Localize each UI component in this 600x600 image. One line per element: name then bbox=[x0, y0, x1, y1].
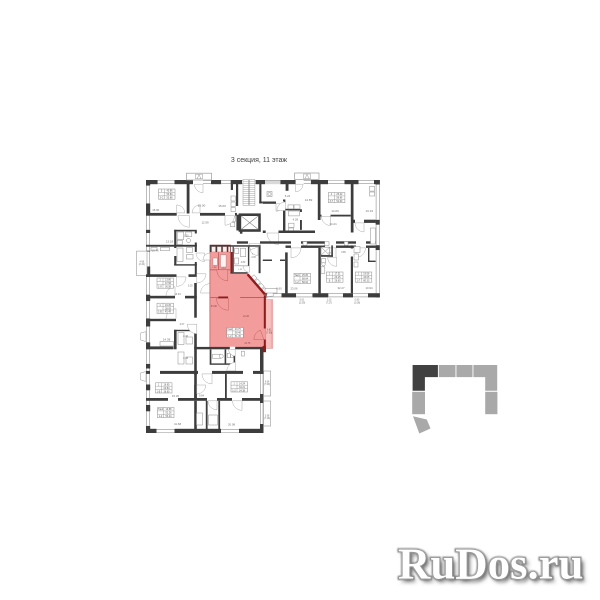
svg-text:36.58: 36.58 bbox=[165, 286, 172, 289]
svg-text:1-Л: 1-Л bbox=[158, 286, 162, 289]
svg-text:4.68: 4.68 bbox=[140, 261, 145, 263]
svg-text:RuDos.ru: RuDos.ru bbox=[398, 539, 583, 589]
svg-text:3.58: 3.58 bbox=[265, 415, 270, 417]
svg-text:12.99: 12.99 bbox=[202, 221, 209, 225]
svg-text:20.08: 20.08 bbox=[228, 423, 235, 427]
svg-text:53.44: 53.44 bbox=[166, 415, 173, 418]
svg-text:1.53: 1.53 bbox=[184, 235, 189, 238]
svg-text:(7.18): (7.18) bbox=[264, 418, 270, 420]
svg-text:4.05: 4.05 bbox=[251, 257, 256, 259]
svg-text:5.24: 5.24 bbox=[285, 194, 291, 198]
svg-text:1.39: 1.39 bbox=[238, 269, 243, 271]
svg-text:4.28: 4.28 bbox=[293, 217, 299, 221]
svg-text:51.45: 51.45 bbox=[235, 335, 242, 338]
svg-text:(2.59): (2.59) bbox=[299, 302, 305, 305]
svg-text:45.49: 45.49 bbox=[165, 311, 172, 314]
svg-text:3-С: 3-С bbox=[160, 197, 164, 200]
svg-text:41.68: 41.68 bbox=[174, 422, 181, 426]
svg-text:9.60: 9.60 bbox=[276, 287, 282, 291]
svg-text:14.38: 14.38 bbox=[163, 337, 171, 341]
svg-text:13.94: 13.94 bbox=[174, 293, 181, 296]
svg-text:(7.27): (7.27) bbox=[326, 302, 332, 305]
svg-text:21.26: 21.26 bbox=[243, 316, 249, 318]
svg-text:13.76: 13.76 bbox=[152, 249, 159, 253]
svg-text:15.36: 15.36 bbox=[172, 394, 179, 398]
svg-text:Так2: Так2 bbox=[227, 328, 233, 331]
svg-text:4.46: 4.46 bbox=[183, 334, 189, 338]
svg-text:Так2: Так2 bbox=[158, 408, 164, 411]
svg-text:15.00: 15.00 bbox=[198, 204, 206, 208]
svg-text:13.18: 13.18 bbox=[166, 240, 173, 244]
svg-text:(1.08): (1.08) bbox=[354, 302, 360, 305]
svg-text:32.27: 32.27 bbox=[338, 286, 345, 290]
svg-text:6.58: 6.58 bbox=[265, 381, 270, 383]
svg-text:15.60: 15.60 bbox=[218, 204, 226, 208]
svg-text:4.89: 4.89 bbox=[241, 262, 246, 264]
svg-text:14.89: 14.89 bbox=[305, 198, 313, 202]
svg-text:(7.09): (7.09) bbox=[266, 332, 272, 334]
svg-text:5.25: 5.25 bbox=[188, 284, 193, 287]
svg-text:53.08: 53.08 bbox=[211, 306, 217, 308]
svg-text:15.00: 15.00 bbox=[152, 208, 159, 212]
svg-text:34.38: 34.38 bbox=[239, 389, 246, 392]
svg-text:(7.09): (7.09) bbox=[264, 384, 270, 386]
svg-text:26.60: 26.60 bbox=[335, 280, 342, 283]
svg-text:1-Б: 1-Б bbox=[157, 390, 161, 393]
svg-text:23.06: 23.06 bbox=[291, 287, 298, 291]
svg-text:53.88: 53.88 bbox=[167, 197, 174, 200]
svg-text:1-Б: 1-Б bbox=[158, 311, 162, 314]
svg-text:3-Т: 3-Т bbox=[330, 200, 334, 203]
svg-text:14.21: 14.21 bbox=[329, 222, 337, 226]
svg-text:(2.34): (2.34) bbox=[139, 264, 145, 266]
svg-text:3.85: 3.85 bbox=[341, 251, 346, 254]
svg-text:16.19: 16.19 bbox=[366, 209, 374, 213]
svg-text:80.33: 80.33 bbox=[363, 280, 370, 283]
svg-text:10.94: 10.94 bbox=[366, 286, 373, 290]
svg-text:6.61: 6.61 bbox=[267, 330, 272, 332]
svg-text:9.84: 9.84 bbox=[199, 394, 205, 398]
svg-text:58.04: 58.04 bbox=[302, 281, 309, 284]
svg-text:3 секция, 11 этаж: 3 секция, 11 этаж bbox=[231, 157, 288, 164]
svg-text:36.60: 36.60 bbox=[164, 390, 171, 393]
svg-text:54.60: 54.60 bbox=[336, 200, 343, 203]
svg-text:4.45: 4.45 bbox=[183, 356, 189, 360]
svg-text:4.67: 4.67 bbox=[180, 323, 185, 326]
svg-text:14.06: 14.06 bbox=[331, 209, 339, 213]
svg-text:21.75: 21.75 bbox=[245, 343, 251, 345]
svg-text:Так1: Так1 bbox=[294, 274, 300, 277]
